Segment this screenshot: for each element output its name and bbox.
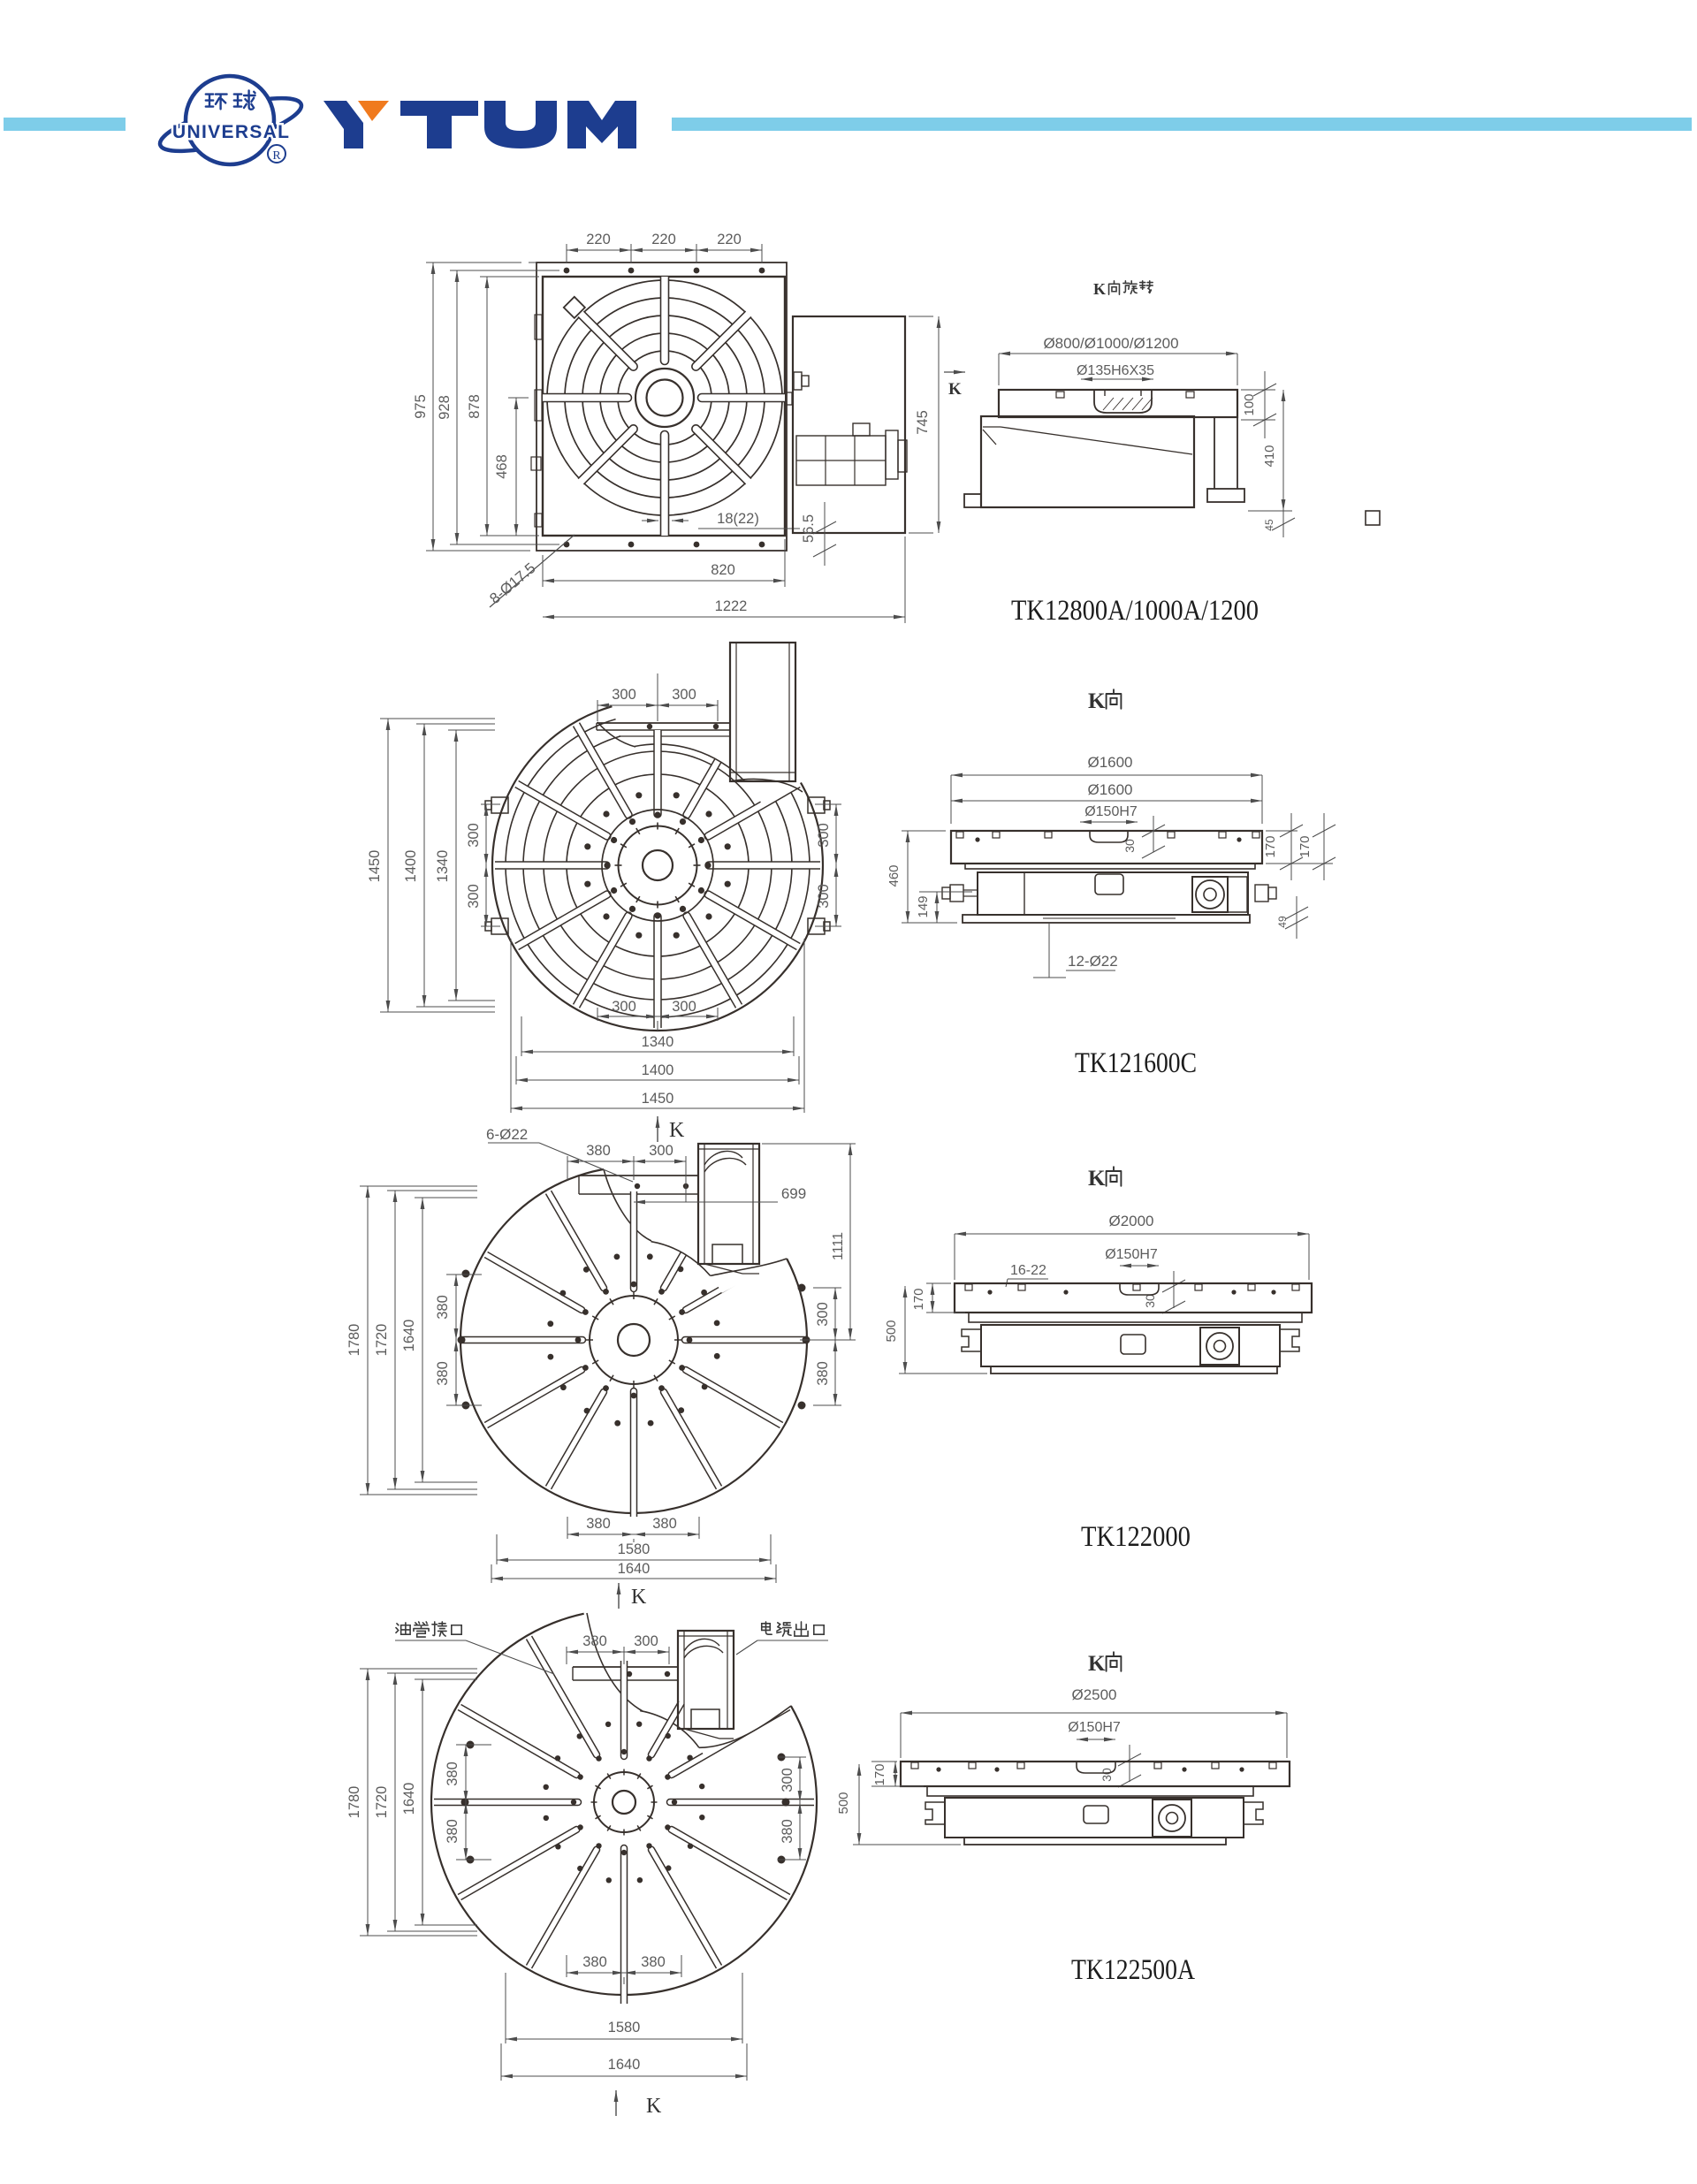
svg-text:220: 220 [586,232,611,247]
svg-text:380: 380 [582,1954,607,1970]
svg-text:K: K [1088,1652,1106,1676]
svg-text:Ø150H7: Ø150H7 [1105,1247,1158,1262]
svg-text:Ø800/Ø1000/Ø1200: Ø800/Ø1000/Ø1200 [1043,335,1178,352]
svg-text:380: 380 [582,1633,607,1649]
svg-text:Ø150H7: Ø150H7 [1068,1720,1121,1735]
svg-text:Ø2500: Ø2500 [1071,1686,1116,1703]
svg-text:1640: 1640 [608,2057,641,2073]
svg-text:1640: 1640 [401,1320,417,1352]
svg-text:1340: 1340 [435,850,451,883]
svg-text:300: 300 [815,1302,831,1327]
svg-text:468: 468 [494,454,510,479]
svg-text:K: K [1088,689,1106,713]
svg-text:380: 380 [445,1762,460,1786]
svg-text:975: 975 [413,394,429,419]
svg-text:K: K [1088,1167,1106,1191]
svg-text:TK122000: TK122000 [1081,1521,1191,1553]
svg-text:12-Ø22: 12-Ø22 [1068,953,1118,970]
svg-text:170: 170 [872,1763,887,1785]
svg-text:380: 380 [445,1819,460,1844]
svg-text:18(22): 18(22) [717,511,759,527]
svg-text:745: 745 [915,410,931,435]
svg-text:149: 149 [916,895,931,917]
svg-text:1400: 1400 [403,850,419,883]
svg-text:1780: 1780 [346,1324,362,1357]
svg-text:UNIVERSAL: UNIVERSAL [172,122,289,142]
svg-text:1222: 1222 [715,598,748,614]
svg-text:928: 928 [437,395,453,420]
svg-text:TK12800A/1000A/1200: TK12800A/1000A/1200 [1011,595,1259,627]
svg-text:TK122500A: TK122500A [1071,1954,1195,1986]
svg-text:6-Ø22: 6-Ø22 [486,1126,528,1143]
svg-text:170: 170 [911,1288,926,1310]
svg-text:380: 380 [641,1954,666,1970]
svg-text:380: 380 [435,1361,451,1386]
svg-text:460: 460 [887,864,902,887]
svg-text:300: 300 [634,1633,658,1649]
svg-text:500: 500 [836,1792,851,1814]
svg-text:380: 380 [815,1361,831,1386]
svg-text:300: 300 [672,687,696,703]
svg-text:1640: 1640 [618,1561,651,1577]
svg-text:380: 380 [586,1143,611,1159]
svg-text:30: 30 [1100,1768,1114,1782]
svg-text:1111: 1111 [831,1232,846,1260]
svg-text:220: 220 [717,232,742,247]
svg-text:380: 380 [586,1516,611,1532]
svg-text:16-22: 16-22 [1010,1263,1046,1278]
svg-text:500: 500 [884,1320,899,1342]
svg-text:300: 300 [816,884,832,909]
svg-text:K: K [948,380,962,399]
svg-text:1720: 1720 [374,1324,390,1357]
svg-text:1780: 1780 [346,1786,362,1819]
svg-text:Ø2000: Ø2000 [1108,1213,1153,1229]
svg-text:K: K [646,2095,662,2118]
svg-text:170: 170 [1297,835,1313,857]
svg-text:49: 49 [1276,916,1289,928]
svg-text:Ø1600: Ø1600 [1087,754,1132,771]
svg-text:410: 410 [1262,445,1277,467]
svg-text:380: 380 [780,1819,795,1844]
svg-text:TK121600C: TK121600C [1075,1047,1197,1079]
svg-text:878: 878 [467,394,483,419]
svg-text:1450: 1450 [367,850,383,883]
svg-text:300: 300 [466,823,482,848]
svg-text:1720: 1720 [374,1786,390,1819]
svg-text:Ø150H7: Ø150H7 [1084,804,1138,819]
svg-text:1400: 1400 [642,1062,674,1078]
svg-text:1450: 1450 [642,1091,674,1107]
svg-text:820: 820 [711,562,735,578]
svg-text:K: K [631,1586,647,1609]
svg-text:1340: 1340 [642,1034,674,1050]
svg-text:45: 45 [1263,519,1275,531]
svg-text:220: 220 [651,232,676,247]
svg-text:300: 300 [612,999,636,1015]
svg-text:380: 380 [652,1516,677,1532]
svg-text:300: 300 [612,687,636,703]
svg-text:K: K [1093,280,1106,298]
svg-text:100: 100 [1242,393,1257,415]
svg-text:300: 300 [780,1768,795,1792]
svg-text:Ø135H6X35: Ø135H6X35 [1077,363,1154,378]
svg-text:1640: 1640 [401,1783,417,1815]
svg-text:170: 170 [1263,835,1278,857]
svg-text:56.5: 56.5 [801,514,817,543]
svg-text:30: 30 [1143,1294,1157,1308]
svg-text:699: 699 [781,1185,806,1202]
svg-text:300: 300 [816,823,832,848]
svg-text:380: 380 [435,1295,451,1320]
svg-text:K: K [669,1119,685,1142]
svg-text:30: 30 [1122,839,1137,853]
svg-text:1580: 1580 [618,1541,651,1557]
svg-text:300: 300 [466,884,482,909]
svg-text:R: R [272,149,281,163]
svg-text:300: 300 [672,999,696,1015]
svg-text:1580: 1580 [608,2020,641,2036]
svg-text:300: 300 [649,1143,673,1159]
svg-text:Ø1600: Ø1600 [1087,781,1132,798]
